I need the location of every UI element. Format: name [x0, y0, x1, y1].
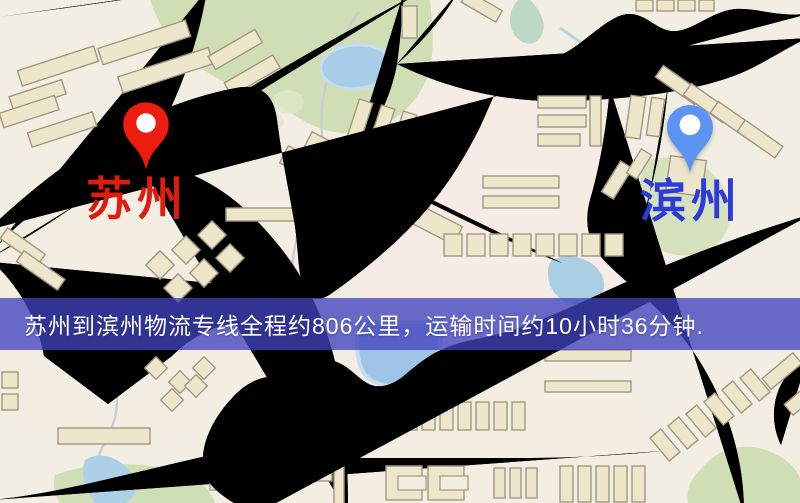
- origin-city-label: 苏州: [86, 176, 188, 222]
- route-info-text: 苏州到滨州物流专线全程约806公里，运输时间约10小时36分钟.: [0, 307, 704, 341]
- route-info-banner: 苏州到滨州物流专线全程约806公里，运输时间约10小时36分钟.: [0, 298, 800, 350]
- destination-pin-icon[interactable]: [663, 103, 717, 175]
- origin-pin-icon[interactable]: [120, 100, 172, 172]
- destination-city-label: 滨州: [640, 178, 742, 224]
- map-view: 苏州 滨州 苏州到滨州物流专线全程约806公里，运输时间约10小时36分钟.: [0, 0, 800, 503]
- map-canvas[interactable]: [0, 0, 800, 503]
